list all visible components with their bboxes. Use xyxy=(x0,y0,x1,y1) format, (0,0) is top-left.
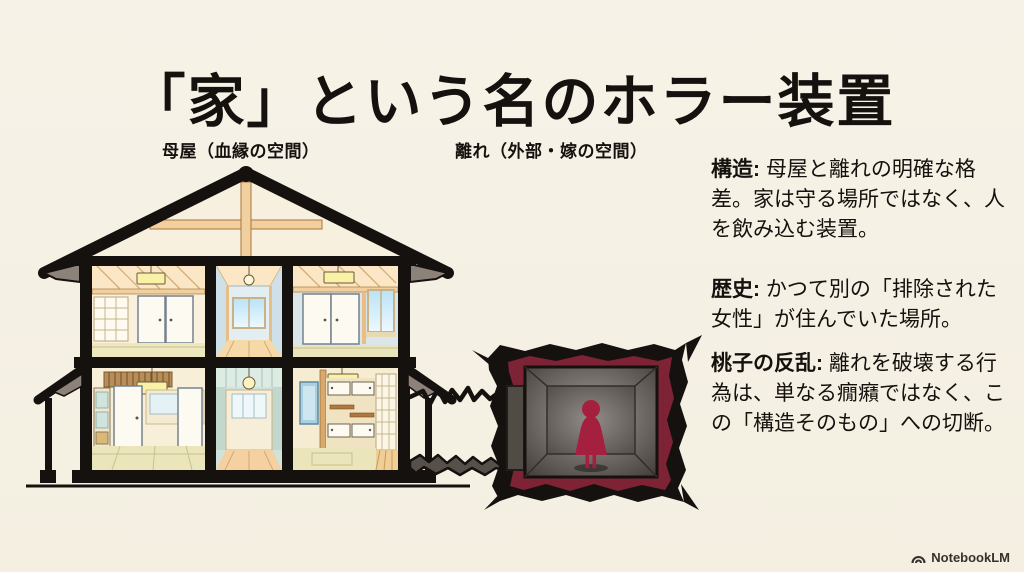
notebooklm-watermark: NotebookLM xyxy=(911,550,1010,565)
note-rebellion: 桃子の反乱: 離れを破壊する行為は、単なる癇癪ではなく、この「構造そのもの」への… xyxy=(711,349,1014,439)
note-rebellion-lead: 桃子の反乱: xyxy=(711,352,823,375)
room-upper-middle xyxy=(216,265,282,357)
room-upper-left xyxy=(92,265,205,357)
house-cross-section-illustration xyxy=(20,160,720,510)
page-title: 「家」という名のホラー装置 xyxy=(0,56,1024,138)
note-history-lead: 歴史: xyxy=(711,278,760,301)
room-ground-left xyxy=(92,367,205,470)
label-detached-room: 離れ（外部・嫁の空間） xyxy=(455,137,648,162)
hanging-lamp xyxy=(243,377,255,389)
room-ground-middle xyxy=(216,367,282,470)
label-main-house: 母屋（血縁の空間） xyxy=(162,137,320,162)
notebooklm-label: NotebookLM xyxy=(931,550,1010,565)
window xyxy=(232,394,266,418)
room-ground-right xyxy=(293,367,398,470)
fusuma-door xyxy=(331,294,359,344)
foundation xyxy=(72,470,418,483)
note-history: 歴史: かつて別の「排除された女性」が住んでいた場所。 xyxy=(711,275,1014,335)
staggered-shelf xyxy=(350,413,374,417)
shadow xyxy=(574,464,608,472)
sliding-door xyxy=(178,388,202,448)
doorway xyxy=(507,386,524,470)
note-structure: 構造: 母屋と離れの明確な格差。家は守る場所ではなく、人を飲み込む装置。 xyxy=(711,155,1014,245)
ceiling-lamp xyxy=(137,273,165,284)
annotation-column: 構造: 母屋と離れの明確な格差。家は守る場所ではなく、人を飲み込む装置。 歴史:… xyxy=(711,155,1014,469)
attic xyxy=(78,176,412,260)
fusuma-door xyxy=(303,294,331,344)
hanging-lamp xyxy=(244,275,254,285)
roof-finial xyxy=(238,166,254,182)
shoji-screen xyxy=(376,374,396,450)
room-upper-right xyxy=(293,265,398,357)
slide: 「家」という名のホラー装置 母屋（血縁の空間） 離れ（外部・嫁の空間） xyxy=(0,0,1024,572)
notebooklm-icon xyxy=(911,551,926,564)
ceiling-lamp xyxy=(324,272,354,283)
detached-room-illustration xyxy=(472,335,702,510)
note-structure-lead: 構造: xyxy=(711,158,760,181)
staggered-shelf xyxy=(330,405,354,409)
